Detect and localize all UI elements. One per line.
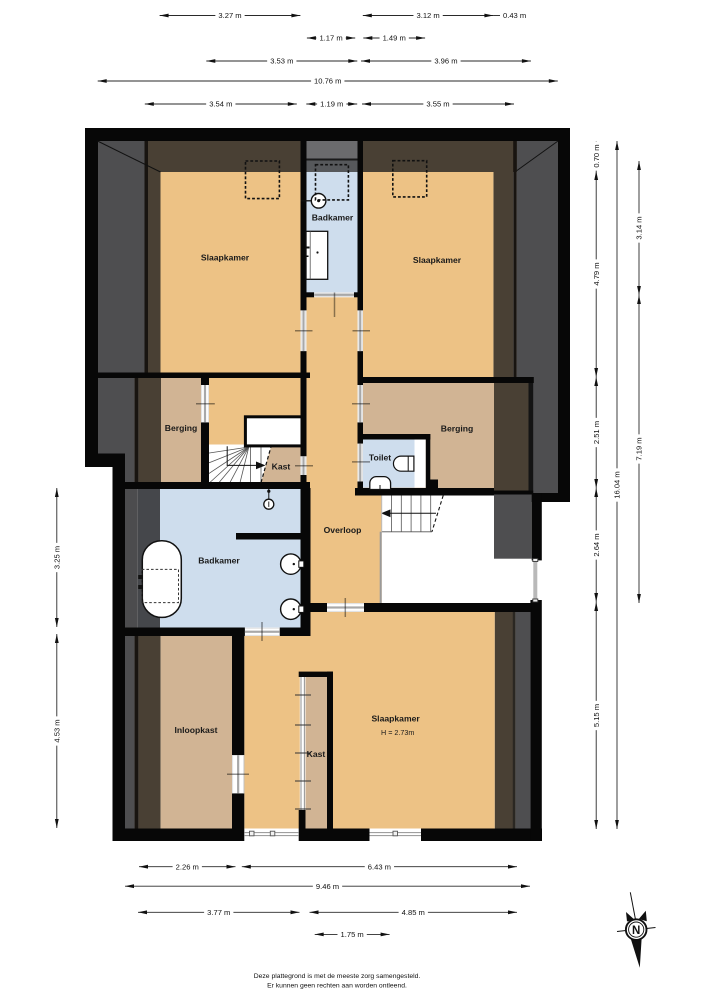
svg-text:3.14 m: 3.14 m	[635, 216, 644, 239]
svg-text:3.96 m: 3.96 m	[434, 57, 457, 66]
svg-text:Overloop: Overloop	[324, 525, 362, 535]
svg-text:3.77 m: 3.77 m	[207, 908, 230, 917]
svg-text:Badkamer: Badkamer	[198, 556, 240, 566]
svg-text:2.64 m: 2.64 m	[592, 533, 601, 556]
svg-text:5.15 m: 5.15 m	[592, 704, 601, 727]
svg-text:Badkamer: Badkamer	[312, 213, 354, 223]
svg-text:3.25 m: 3.25 m	[52, 546, 61, 569]
svg-text:1.75 m: 1.75 m	[341, 930, 364, 939]
svg-text:Slaapkamer: Slaapkamer	[371, 714, 420, 724]
svg-text:2.26 m: 2.26 m	[176, 862, 199, 871]
svg-text:0.70 m: 0.70 m	[592, 144, 601, 167]
svg-text:Kast: Kast	[272, 462, 291, 472]
svg-text:0.43 m: 0.43 m	[503, 11, 526, 20]
svg-text:10.76 m: 10.76 m	[314, 77, 341, 86]
svg-text:3.53 m: 3.53 m	[270, 57, 293, 66]
svg-text:3.27 m: 3.27 m	[218, 11, 241, 20]
svg-text:1.19 m: 1.19 m	[320, 100, 343, 109]
svg-text:N: N	[632, 925, 640, 937]
svg-text:Berging: Berging	[165, 423, 197, 433]
svg-text:9.46 m: 9.46 m	[316, 882, 339, 891]
svg-text:Kast: Kast	[307, 749, 326, 759]
svg-text:Er kunnen geen rechten aan wor: Er kunnen geen rechten aan worden ontlee…	[267, 983, 407, 990]
svg-text:1.49 m: 1.49 m	[383, 34, 406, 43]
svg-text:3.55 m: 3.55 m	[426, 100, 449, 109]
svg-text:Deze plattegrond is met de mee: Deze plattegrond is met de meeste zorg s…	[254, 973, 421, 980]
svg-text:16.04 m: 16.04 m	[613, 471, 622, 498]
svg-text:4.79 m: 4.79 m	[592, 262, 601, 285]
svg-text:Slaapkamer: Slaapkamer	[413, 255, 462, 265]
svg-text:1.17 m: 1.17 m	[319, 34, 342, 43]
svg-text:H = 2.73m: H = 2.73m	[381, 728, 414, 737]
svg-text:7.19 m: 7.19 m	[635, 437, 644, 460]
svg-text:Berging: Berging	[441, 424, 473, 434]
svg-text:4.85 m: 4.85 m	[402, 908, 425, 917]
svg-text:4.53 m: 4.53 m	[52, 719, 61, 742]
svg-text:Slaapkamer: Slaapkamer	[201, 253, 250, 263]
svg-text:6.43 m: 6.43 m	[368, 862, 391, 871]
svg-text:3.54 m: 3.54 m	[209, 100, 232, 109]
svg-text:2.51 m: 2.51 m	[592, 421, 601, 444]
svg-text:3.12 m: 3.12 m	[416, 11, 439, 20]
svg-text:Inloopkast: Inloopkast	[175, 725, 218, 735]
svg-text:Toilet: Toilet	[369, 453, 391, 463]
